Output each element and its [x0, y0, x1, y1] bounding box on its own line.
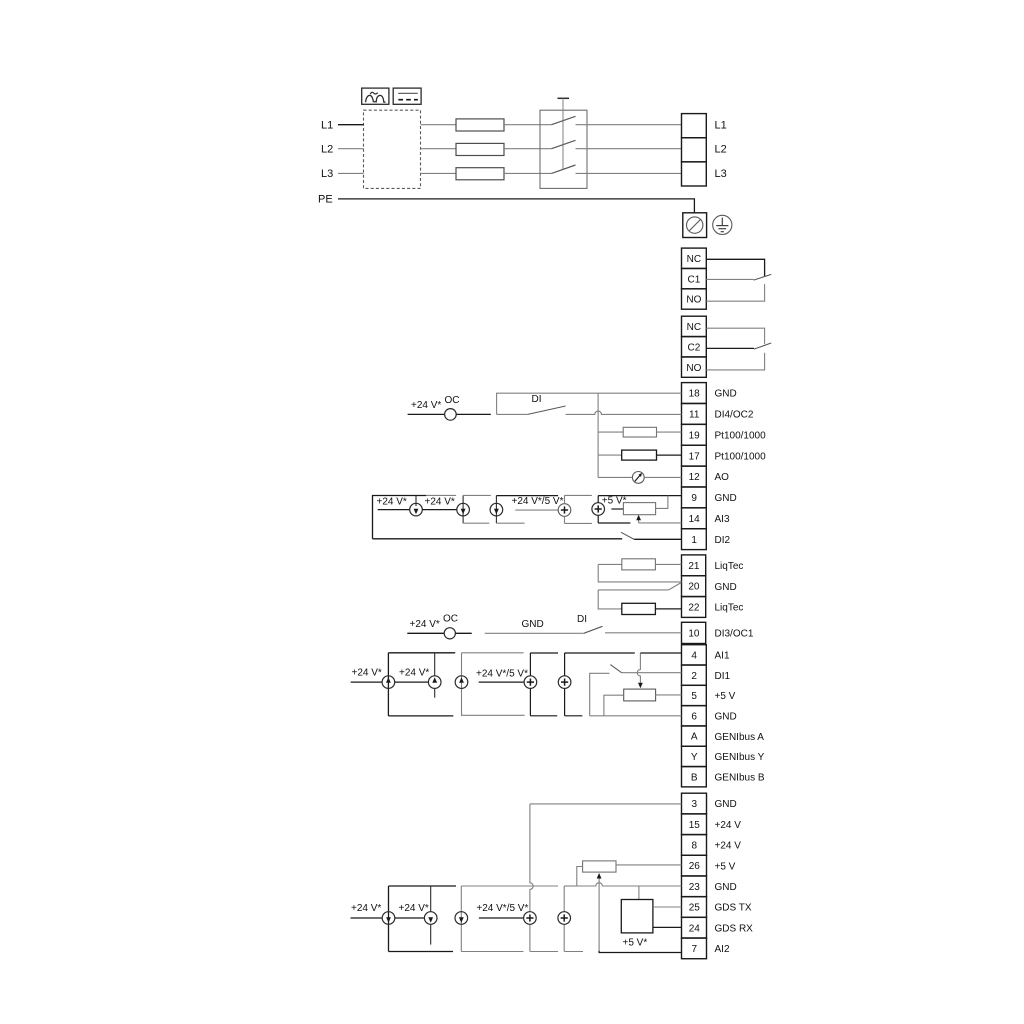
svg-text:GND: GND: [715, 582, 737, 593]
svg-text:8: 8: [692, 841, 698, 852]
svg-text:L1: L1: [715, 120, 727, 132]
svg-text:Pt100/1000: Pt100/1000: [715, 451, 767, 462]
svg-text:NO: NO: [686, 295, 701, 306]
svg-text:+24 V: +24 V: [715, 820, 742, 831]
svg-text:DI: DI: [532, 394, 542, 405]
svg-text:2: 2: [691, 671, 697, 682]
svg-text:+24 V*/5 V*: +24 V*/5 V*: [476, 903, 528, 914]
svg-text:L2: L2: [715, 144, 727, 156]
svg-text:3: 3: [692, 799, 698, 810]
svg-text:+24 V*: +24 V*: [399, 903, 429, 914]
svg-text:C1: C1: [688, 274, 701, 285]
svg-text:22: 22: [688, 603, 700, 614]
svg-text:12: 12: [689, 472, 701, 483]
svg-text:+24 V*: +24 V*: [352, 668, 382, 679]
svg-text:+24 V*: +24 V*: [425, 497, 455, 508]
svg-text:23: 23: [689, 882, 701, 893]
svg-text:+24 V*: +24 V*: [351, 903, 381, 914]
svg-text:25: 25: [689, 903, 701, 914]
svg-text:9: 9: [691, 493, 697, 504]
svg-text:B: B: [691, 772, 698, 783]
svg-text:4: 4: [691, 650, 697, 661]
svg-text:AO: AO: [715, 472, 730, 483]
svg-text:+24 V*: +24 V*: [377, 497, 407, 508]
svg-text:5: 5: [691, 691, 697, 702]
svg-text:+24 V*: +24 V*: [410, 619, 440, 630]
svg-text:GDS TX: GDS TX: [715, 903, 752, 914]
svg-text:NO: NO: [686, 363, 701, 374]
svg-text:AI2: AI2: [715, 944, 730, 955]
svg-text:11: 11: [689, 410, 700, 421]
svg-text:24: 24: [689, 923, 701, 934]
svg-text:C2: C2: [688, 342, 701, 353]
svg-text:15: 15: [689, 820, 701, 831]
svg-text:GDS RX: GDS RX: [715, 923, 754, 934]
svg-text:+24 V*/5 V*: +24 V*/5 V*: [512, 496, 564, 507]
svg-text:+24 V*/5 V*: +24 V*/5 V*: [476, 669, 528, 680]
svg-text:+24 V*: +24 V*: [399, 668, 429, 679]
svg-text:GENIbus A: GENIbus A: [715, 732, 765, 743]
svg-text:20: 20: [688, 582, 700, 593]
svg-text:L1: L1: [321, 119, 333, 131]
svg-text:+5 V: +5 V: [715, 861, 736, 872]
svg-text:14: 14: [689, 514, 701, 525]
svg-text:17: 17: [689, 451, 701, 462]
svg-text:DI2: DI2: [715, 535, 731, 546]
svg-text:OC: OC: [443, 614, 458, 625]
svg-text:6: 6: [691, 711, 697, 722]
svg-text:26: 26: [689, 861, 701, 872]
svg-text:Y: Y: [691, 752, 698, 763]
svg-text:A: A: [691, 732, 698, 743]
svg-text:21: 21: [688, 561, 700, 572]
svg-text:GND: GND: [522, 619, 544, 630]
svg-text:L2: L2: [321, 143, 333, 155]
svg-text:18: 18: [689, 389, 701, 400]
svg-text:GND: GND: [715, 882, 737, 893]
svg-text:DI3/OC1: DI3/OC1: [715, 629, 754, 640]
svg-text:DI4/OC2: DI4/OC2: [715, 410, 754, 421]
svg-text:NC: NC: [687, 254, 701, 265]
svg-text:+5 V*: +5 V*: [623, 938, 648, 949]
svg-text:L3: L3: [715, 168, 727, 180]
svg-text:OC: OC: [445, 395, 460, 406]
svg-text:L3: L3: [321, 168, 333, 180]
svg-text:AI1: AI1: [715, 651, 730, 662]
svg-text:1: 1: [691, 535, 697, 546]
svg-text:GND: GND: [715, 389, 737, 400]
svg-text:+5 V: +5 V: [715, 691, 736, 702]
svg-text:GENIbus B: GENIbus B: [715, 772, 765, 783]
svg-text:19: 19: [689, 430, 701, 441]
svg-text:LiqTec: LiqTec: [715, 603, 744, 614]
svg-text:GND: GND: [715, 493, 737, 504]
svg-text:10: 10: [688, 629, 700, 640]
svg-text:GENIbus Y: GENIbus Y: [715, 752, 765, 763]
svg-text:DI: DI: [577, 614, 587, 625]
svg-text:+24 V*: +24 V*: [411, 400, 441, 411]
svg-text:7: 7: [692, 944, 698, 955]
svg-text:PE: PE: [318, 194, 333, 206]
svg-text:GND: GND: [715, 799, 737, 810]
svg-text:Pt100/1000: Pt100/1000: [715, 430, 767, 441]
svg-text:NC: NC: [687, 322, 701, 333]
svg-text:+24 V: +24 V: [715, 841, 742, 852]
svg-text:LiqTec: LiqTec: [715, 561, 744, 572]
svg-text:DI1: DI1: [715, 671, 731, 682]
svg-text:AI3: AI3: [715, 514, 730, 525]
svg-text:GND: GND: [715, 711, 737, 722]
